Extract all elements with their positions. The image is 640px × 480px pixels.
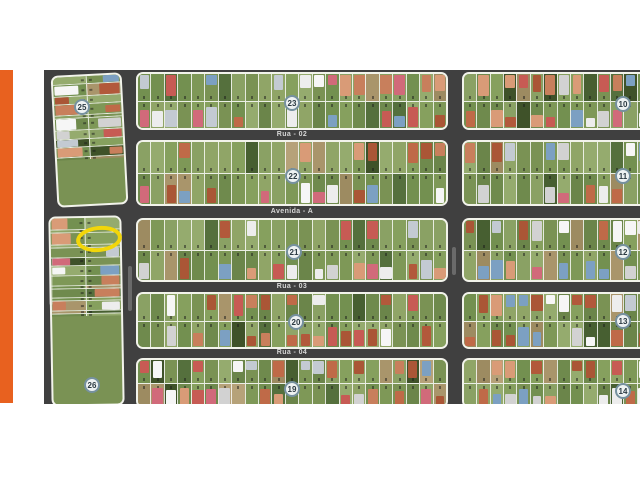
lot	[597, 360, 610, 383]
parcel-block	[462, 218, 640, 282]
lot	[476, 102, 489, 128]
lot-number-mark	[483, 324, 485, 327]
lot-number-mark	[385, 378, 387, 381]
lot	[339, 74, 352, 101]
rooftop	[273, 264, 283, 279]
lot-number-mark	[509, 176, 511, 179]
lot-number-mark	[304, 253, 306, 256]
lot-number-mark	[603, 316, 605, 319]
lot-number-mark	[589, 253, 591, 256]
lot-number-mark	[318, 176, 320, 179]
lot	[150, 294, 163, 321]
lot-number-mark	[81, 89, 84, 91]
lot-number-mark	[81, 314, 84, 316]
lot-number-mark	[536, 386, 538, 389]
lot	[177, 74, 190, 101]
lot	[231, 142, 244, 173]
lot-number-mark	[143, 96, 145, 99]
lot-number-mark	[318, 253, 320, 256]
rooftop	[612, 361, 621, 375]
lot-number-mark	[345, 176, 347, 179]
lot-number-mark	[318, 316, 320, 319]
lot-number-mark	[563, 324, 565, 327]
lot	[258, 74, 271, 101]
lot	[245, 220, 258, 250]
rooftop	[613, 110, 622, 127]
lot	[557, 142, 570, 173]
lot-number-mark	[385, 104, 387, 107]
lot-number-mark	[331, 104, 333, 107]
lot-number-mark	[425, 316, 427, 319]
lot	[557, 294, 570, 321]
lot-number-mark	[237, 253, 239, 256]
lot	[570, 384, 583, 404]
lot	[150, 384, 163, 404]
lot-number-mark	[210, 324, 212, 327]
lot-number-mark	[170, 168, 172, 171]
rooftop	[531, 361, 542, 374]
lot-number-mark	[157, 176, 159, 179]
lot	[583, 142, 596, 173]
lot	[312, 102, 325, 128]
lot-number-mark	[399, 176, 401, 179]
rooftop	[193, 361, 203, 372]
rooftop	[206, 107, 218, 127]
lot-number-mark	[603, 324, 605, 327]
rooftop	[572, 361, 581, 371]
rooftop	[505, 75, 515, 88]
rooftop	[55, 97, 70, 105]
lot-number-mark	[224, 253, 226, 256]
lot	[476, 74, 489, 101]
lot	[258, 102, 271, 128]
lot-number-mark	[523, 168, 525, 171]
lot	[597, 142, 610, 173]
rooftop	[613, 75, 622, 91]
rooftop	[625, 266, 636, 279]
rooftop	[478, 75, 489, 96]
lot	[245, 294, 258, 321]
rooftop	[558, 143, 569, 160]
rooftop	[367, 264, 379, 279]
rooftop	[612, 189, 622, 203]
lot	[379, 102, 392, 128]
lot	[231, 360, 244, 383]
rooftop	[493, 394, 502, 404]
lot	[164, 360, 177, 383]
aerial-map: Rua - 02 Avenida - A Rua - 03 Rua - 04 2…	[44, 70, 640, 404]
lot	[543, 384, 556, 404]
rooftop	[261, 191, 270, 203]
rooftop	[57, 140, 79, 148]
rooftop	[434, 268, 445, 279]
lot-number-mark	[509, 245, 511, 248]
lot	[503, 174, 516, 204]
rooftop	[519, 295, 528, 306]
lot-number-mark	[197, 96, 199, 99]
lot	[597, 220, 610, 250]
lot	[352, 360, 365, 383]
lot	[433, 220, 446, 250]
rooftop	[599, 395, 608, 404]
lot	[164, 322, 177, 348]
rooftop	[53, 302, 66, 311]
rooftop	[408, 221, 418, 238]
page-background: Rua - 02 Avenida - A Rua - 03 Rua - 04 2…	[0, 0, 640, 480]
lot-number-mark	[170, 176, 172, 179]
lot-number-mark	[399, 324, 401, 327]
rooftop	[559, 221, 569, 233]
lot	[271, 142, 284, 173]
lot	[218, 142, 231, 173]
lot	[204, 220, 217, 250]
lot	[433, 360, 446, 383]
lot	[433, 251, 446, 280]
rooftop	[533, 332, 542, 346]
lot	[583, 294, 596, 321]
rooftop	[559, 295, 569, 312]
rooftop	[380, 75, 391, 94]
lot	[258, 174, 271, 204]
lot-number-mark	[304, 104, 306, 107]
lot	[503, 142, 516, 173]
rooftop	[505, 361, 515, 378]
lot	[583, 360, 596, 383]
rooftop	[313, 295, 324, 305]
lot	[392, 102, 405, 128]
lot	[476, 251, 489, 280]
lot	[164, 384, 177, 404]
lot-number-mark	[80, 280, 83, 282]
lot	[52, 301, 86, 310]
lot-number-mark	[264, 104, 266, 107]
lot-number-mark	[331, 176, 333, 179]
lot	[530, 322, 543, 348]
lot-row	[464, 360, 640, 383]
lot	[325, 174, 338, 204]
lot	[406, 74, 419, 101]
lot	[339, 220, 352, 250]
lot-number-mark	[576, 324, 578, 327]
rooftop	[585, 295, 596, 308]
lot	[476, 360, 489, 383]
lot-number-mark	[358, 378, 360, 381]
rooftop	[545, 75, 555, 95]
block-badge-13: 13	[615, 313, 631, 329]
lot	[583, 102, 596, 128]
rooftop	[532, 221, 541, 241]
lot	[50, 218, 84, 229]
rooftop	[102, 74, 119, 82]
lot-number-mark	[170, 253, 172, 256]
lot	[325, 142, 338, 173]
lot	[406, 251, 419, 280]
lot-number-mark	[89, 314, 92, 316]
lot-number-mark	[93, 156, 96, 158]
rooftop	[166, 75, 177, 96]
lot-row	[51, 275, 120, 286]
rooftop	[436, 396, 445, 404]
lot	[191, 74, 204, 101]
lot-number-mark	[412, 168, 414, 171]
rooftop	[545, 396, 555, 404]
lot-number-mark	[345, 386, 347, 389]
lot-number-mark	[469, 386, 471, 389]
lot	[164, 102, 177, 128]
lot-number-mark	[251, 253, 253, 256]
lot	[610, 360, 623, 383]
lot	[406, 102, 419, 128]
lot	[419, 251, 432, 280]
lot	[490, 220, 503, 250]
lot	[503, 74, 516, 101]
lot	[164, 142, 177, 173]
lot	[164, 74, 177, 101]
lot-number-mark	[576, 316, 578, 319]
lot-number-mark	[385, 253, 387, 256]
rooftop	[152, 388, 163, 404]
lot	[570, 102, 583, 128]
lot-number-mark	[563, 386, 565, 389]
lot	[365, 251, 378, 280]
lot-number-mark	[157, 104, 159, 107]
lot	[325, 384, 338, 404]
rooftop	[492, 143, 502, 162]
lot	[365, 322, 378, 348]
lot-number-mark	[264, 176, 266, 179]
lot-number-mark	[358, 176, 360, 179]
lot-number-mark	[251, 324, 253, 327]
lot	[138, 102, 150, 128]
lot-number-mark	[345, 316, 347, 319]
lot	[464, 142, 476, 173]
rooftop	[626, 143, 635, 156]
lot-number-mark	[589, 378, 591, 381]
block-badge-19: 19	[284, 381, 300, 397]
lot-number-mark	[143, 245, 145, 248]
lot	[271, 74, 284, 101]
lot-number-mark	[157, 168, 159, 171]
parcel-block	[462, 292, 640, 349]
lot-number-mark	[576, 245, 578, 248]
rooftop	[153, 361, 162, 378]
lot-number-mark	[439, 386, 441, 389]
lot-number-mark	[81, 79, 84, 81]
lot-number-mark	[197, 253, 199, 256]
lot-number-mark	[603, 253, 605, 256]
lot-number-mark	[549, 316, 551, 319]
lot	[406, 220, 419, 250]
rooftop	[247, 221, 256, 236]
lot	[597, 384, 610, 404]
rooftop	[354, 361, 364, 374]
lot-number-mark	[143, 324, 145, 327]
lot	[392, 174, 405, 204]
lot	[231, 102, 244, 128]
lot	[503, 102, 516, 128]
lot	[623, 360, 636, 383]
lot-number-mark	[629, 378, 631, 381]
lot	[530, 384, 543, 404]
lot-row	[51, 265, 120, 276]
lot	[392, 322, 405, 348]
lot-number-mark	[304, 324, 306, 327]
rooftop	[167, 326, 176, 346]
lot	[177, 142, 190, 173]
lot-number-mark	[251, 378, 253, 381]
lot-number-mark	[278, 168, 280, 171]
lot	[379, 74, 392, 101]
lot	[177, 384, 190, 404]
lot-number-mark	[385, 168, 387, 171]
rooftop	[234, 117, 243, 127]
lot-number-mark	[304, 316, 306, 319]
rooftop	[612, 295, 622, 312]
lot-number-mark	[563, 316, 565, 319]
lot-number-mark	[224, 378, 226, 381]
lot-number-mark	[237, 104, 239, 107]
rooftop	[368, 389, 378, 404]
lot-number-mark	[563, 378, 565, 381]
rooftop	[260, 389, 270, 404]
lot-number-mark	[89, 79, 92, 81]
lot	[557, 251, 570, 280]
lot	[339, 384, 352, 404]
vertical-street-text	[128, 266, 132, 311]
lot	[583, 322, 596, 348]
lot	[419, 294, 432, 321]
parcel-block	[462, 72, 640, 130]
rooftop	[519, 75, 528, 88]
lot-number-mark	[345, 253, 347, 256]
lot-number-mark	[425, 168, 427, 171]
lot	[557, 360, 570, 383]
lot	[177, 251, 190, 280]
lot	[583, 74, 596, 101]
rooftop	[327, 361, 337, 378]
rooftop	[109, 146, 122, 154]
lot	[312, 174, 325, 204]
lot-number-mark	[345, 168, 347, 171]
rooftop	[102, 302, 120, 310]
lot	[557, 220, 570, 250]
rooftop	[505, 117, 516, 127]
lot-row	[464, 250, 640, 280]
lot-number-mark	[264, 324, 266, 327]
street-label-avenida-a: Avenida - A	[136, 207, 448, 216]
rooftop	[598, 111, 609, 127]
lot-number-mark	[536, 378, 538, 381]
lot	[433, 294, 446, 321]
lot-number-mark	[304, 176, 306, 179]
lot	[191, 174, 204, 204]
lot	[530, 174, 543, 204]
lot	[503, 220, 516, 250]
lot-number-mark	[399, 316, 401, 319]
rooftop	[531, 295, 543, 311]
lot	[339, 360, 352, 383]
lot	[406, 294, 419, 321]
rooftop	[57, 148, 82, 158]
rooftop	[94, 289, 119, 297]
lot	[530, 251, 543, 280]
lot-number-mark	[237, 168, 239, 171]
lot-number-mark	[536, 104, 538, 107]
lot-row	[464, 101, 640, 128]
lot-number-mark	[91, 122, 94, 124]
rooftop	[301, 361, 310, 370]
lot	[530, 142, 543, 173]
lot	[464, 360, 476, 383]
lot	[191, 294, 204, 321]
rooftop	[368, 329, 377, 346]
lot-number-mark	[318, 96, 320, 99]
lot-number-mark	[589, 104, 591, 107]
rooftop	[558, 193, 569, 203]
lot	[86, 314, 121, 317]
rooftop	[625, 295, 636, 311]
lot	[583, 174, 596, 204]
lot-number-mark	[439, 176, 441, 179]
lot-number-mark	[412, 386, 414, 389]
parcel-block	[462, 358, 640, 404]
rooftop	[341, 395, 350, 404]
lot	[516, 294, 529, 321]
lot-number-mark	[603, 168, 605, 171]
lot-number-mark	[358, 245, 360, 248]
lot-number-mark	[372, 96, 374, 99]
rooftop	[354, 143, 364, 160]
lot-number-mark	[536, 168, 538, 171]
lot-number-mark	[157, 378, 159, 381]
lot-number-mark	[412, 176, 414, 179]
lot	[433, 142, 446, 173]
lot-number-mark	[536, 96, 538, 99]
lot-number-mark	[385, 316, 387, 319]
lot-number-mark	[251, 316, 253, 319]
lot	[476, 174, 489, 204]
rooftop	[586, 261, 596, 279]
lot-number-mark	[184, 104, 186, 107]
lot	[231, 322, 244, 348]
lot-number-mark	[483, 253, 485, 256]
lot	[557, 102, 570, 128]
lot	[258, 220, 271, 250]
rooftop	[206, 75, 217, 85]
lot-number-mark	[237, 386, 239, 389]
rooftop	[274, 75, 283, 90]
lot-number-mark	[496, 378, 498, 381]
lot	[406, 174, 419, 204]
rooftop	[354, 75, 365, 95]
lot-number-mark	[549, 378, 551, 381]
rooftop	[533, 396, 541, 404]
lot-number-mark	[278, 316, 280, 319]
lot-row	[464, 74, 640, 101]
rooftop	[328, 327, 337, 346]
lot-number-mark	[278, 378, 280, 381]
lot-number-mark	[184, 253, 186, 256]
rooftop	[261, 295, 270, 310]
lot-number-mark	[251, 386, 253, 389]
lot-number-mark	[483, 176, 485, 179]
lot-number-mark	[358, 104, 360, 107]
lot	[476, 322, 489, 348]
lot-number-mark	[318, 378, 320, 381]
lot-number-mark	[304, 386, 306, 389]
lot	[164, 220, 177, 250]
lot-row	[464, 294, 640, 321]
